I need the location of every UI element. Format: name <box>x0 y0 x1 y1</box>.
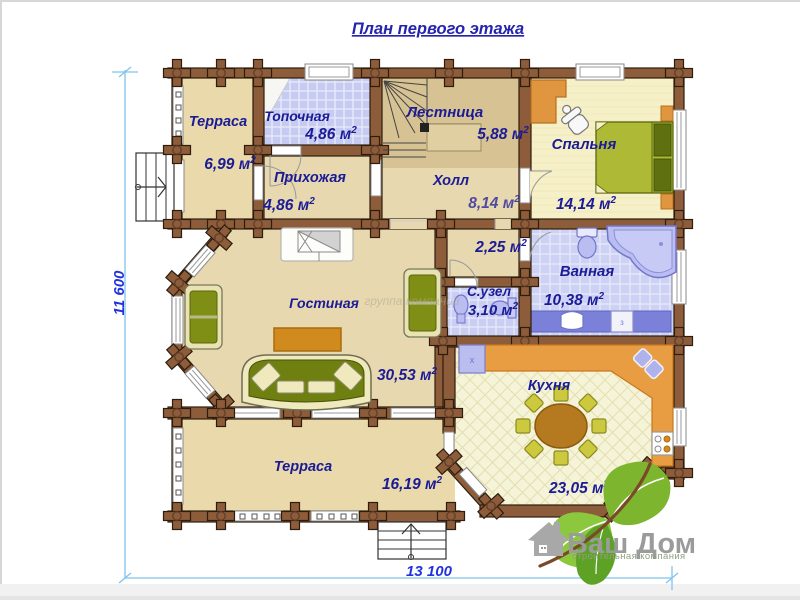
svg-text:5,88 м2: 5,88 м2 <box>477 125 529 143</box>
svg-text:3,10 м2: 3,10 м2 <box>468 301 518 319</box>
svg-text:14,14 м2: 14,14 м2 <box>556 195 617 213</box>
svg-text:4,86 м2: 4,86 м2 <box>304 125 357 143</box>
svg-text:Холл: Холл <box>432 173 469 189</box>
svg-text:Терраса: Терраса <box>189 114 247 130</box>
svg-text:Спальня: Спальня <box>552 136 617 153</box>
svg-text:группа компаний: группа компаний <box>364 294 460 308</box>
svg-text:30,53 м2: 30,53 м2 <box>377 366 438 384</box>
svg-text:2,25 м2: 2,25 м2 <box>474 238 527 256</box>
svg-text:23,05 м2: 23,05 м2 <box>548 479 610 497</box>
svg-text:16,19 м2: 16,19 м2 <box>382 475 443 493</box>
svg-text:x: x <box>470 355 475 365</box>
svg-text:Гостиная: Гостиная <box>289 295 359 311</box>
svg-text:Кухня: Кухня <box>528 378 571 394</box>
svg-text:10,38 м2: 10,38 м2 <box>544 291 605 309</box>
svg-text:План первого этажа: План первого этажа <box>352 20 524 38</box>
svg-text:С.узел: С.узел <box>467 284 512 299</box>
svg-text:строительная компания: строительная компания <box>572 551 686 562</box>
svg-text:з: з <box>620 318 624 327</box>
svg-text:6,99 м2: 6,99 м2 <box>204 155 256 173</box>
svg-text:8,14 м2: 8,14 м2 <box>468 194 520 212</box>
svg-text:Ванная: Ванная <box>560 263 615 280</box>
svg-text:11 600: 11 600 <box>111 270 128 315</box>
svg-text:Терраса: Терраса <box>274 459 332 475</box>
svg-text:4,86 м2: 4,86 м2 <box>262 196 315 214</box>
svg-text:Лестница: Лестница <box>406 104 484 121</box>
svg-text:Прихожая: Прихожая <box>274 170 346 186</box>
svg-text:13 100: 13 100 <box>406 563 453 580</box>
svg-text:Топочная: Топочная <box>264 108 330 124</box>
